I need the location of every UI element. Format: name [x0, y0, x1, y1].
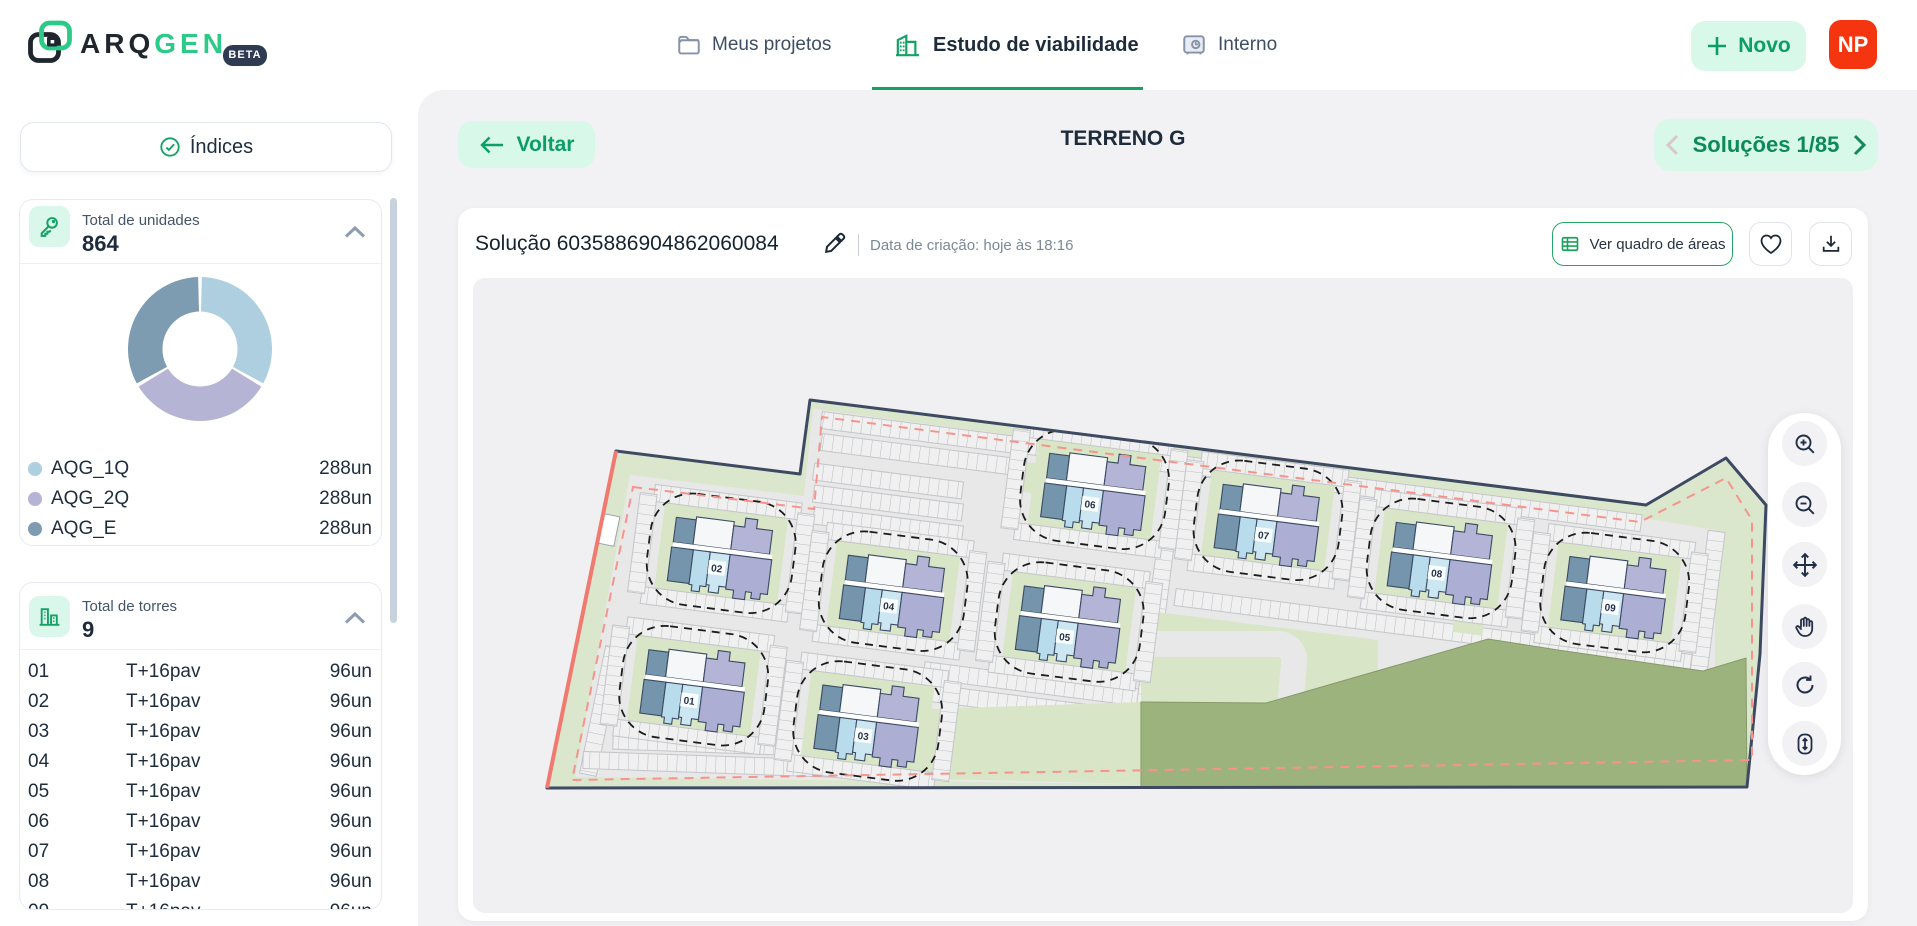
svg-text:05: 05 — [1058, 632, 1071, 644]
svg-text:04: 04 — [882, 601, 895, 613]
svg-text:06: 06 — [1084, 499, 1097, 511]
svg-text:08: 08 — [1430, 568, 1443, 580]
svg-text:07: 07 — [1257, 530, 1270, 542]
svg-text:02: 02 — [710, 563, 723, 575]
svg-text:03: 03 — [857, 731, 870, 743]
svg-text:09: 09 — [1604, 602, 1617, 614]
svg-text:01: 01 — [683, 696, 696, 708]
